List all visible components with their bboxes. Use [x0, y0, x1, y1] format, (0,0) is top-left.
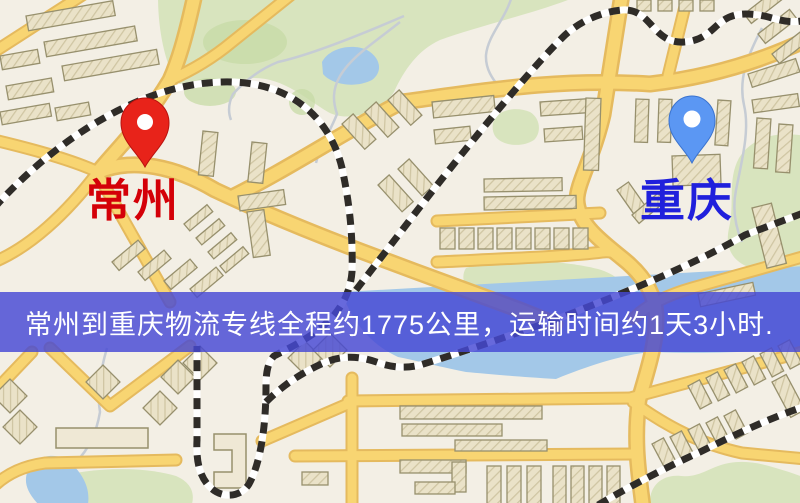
origin-city-label: 常州 — [86, 178, 180, 223]
route-info-banner: 常州到重庆物流专线全程约1775公里，运输时间约1天3小时. — [0, 292, 800, 352]
destination-city-label: 重庆 — [640, 178, 734, 223]
origin-pin-hole — [137, 114, 153, 130]
destination-pin-hole — [684, 111, 701, 128]
map-screenshot: 常州 重庆 常州到重庆物流专线全程约1775公里，运输时间约1天3小时. — [0, 0, 800, 503]
map-canvas[interactable] — [0, 0, 800, 503]
route-info-text: 常州到重庆物流专线全程约1775公里，运输时间约1天3小时. — [0, 303, 774, 342]
